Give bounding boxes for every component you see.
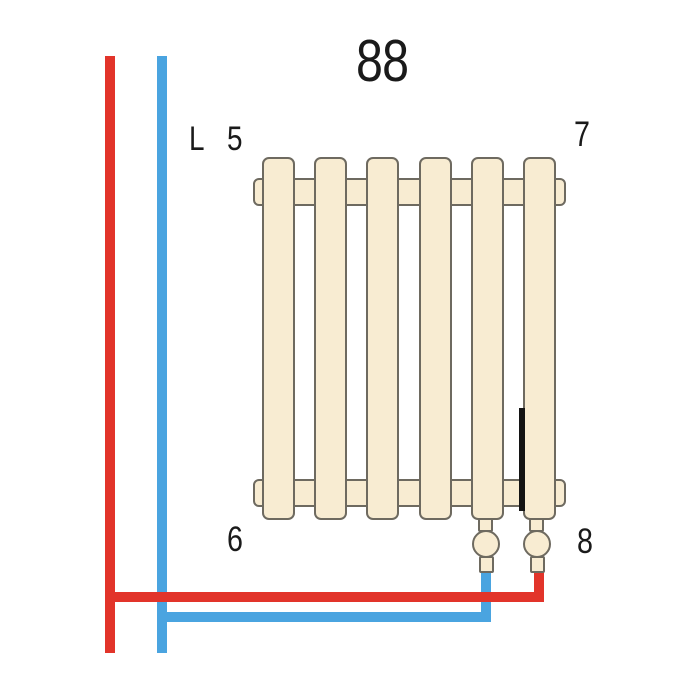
- right-valve-ball: [523, 530, 551, 558]
- label-7: 7: [574, 117, 590, 152]
- connection-side-marker: [519, 408, 525, 511]
- right-valve-lower-stem: [530, 556, 545, 573]
- radiator-column: [262, 157, 295, 520]
- return-pipe-riser: [157, 56, 167, 653]
- label-L: L: [189, 122, 205, 156]
- diagram-canvas: 88 L 5 7 6 8: [0, 0, 700, 700]
- left-valve-ball: [472, 530, 500, 558]
- left-valve-lower-stem: [479, 556, 494, 573]
- label-8: 8: [577, 524, 593, 559]
- supply-pipe-branch: [105, 592, 544, 602]
- supply-pipe-riser: [105, 56, 115, 653]
- radiator-column: [314, 157, 347, 520]
- radiator-columns: [262, 157, 556, 520]
- supply-pipe-valve-connection: [534, 570, 544, 602]
- radiator-column: [366, 157, 399, 520]
- radiator-column: [419, 157, 452, 520]
- radiator-column: [471, 157, 504, 520]
- label-size-88: 88: [356, 32, 408, 91]
- return-pipe-branch: [157, 612, 491, 622]
- radiator-column: [523, 157, 556, 520]
- label-5: 5: [227, 122, 243, 156]
- label-6: 6: [227, 522, 243, 557]
